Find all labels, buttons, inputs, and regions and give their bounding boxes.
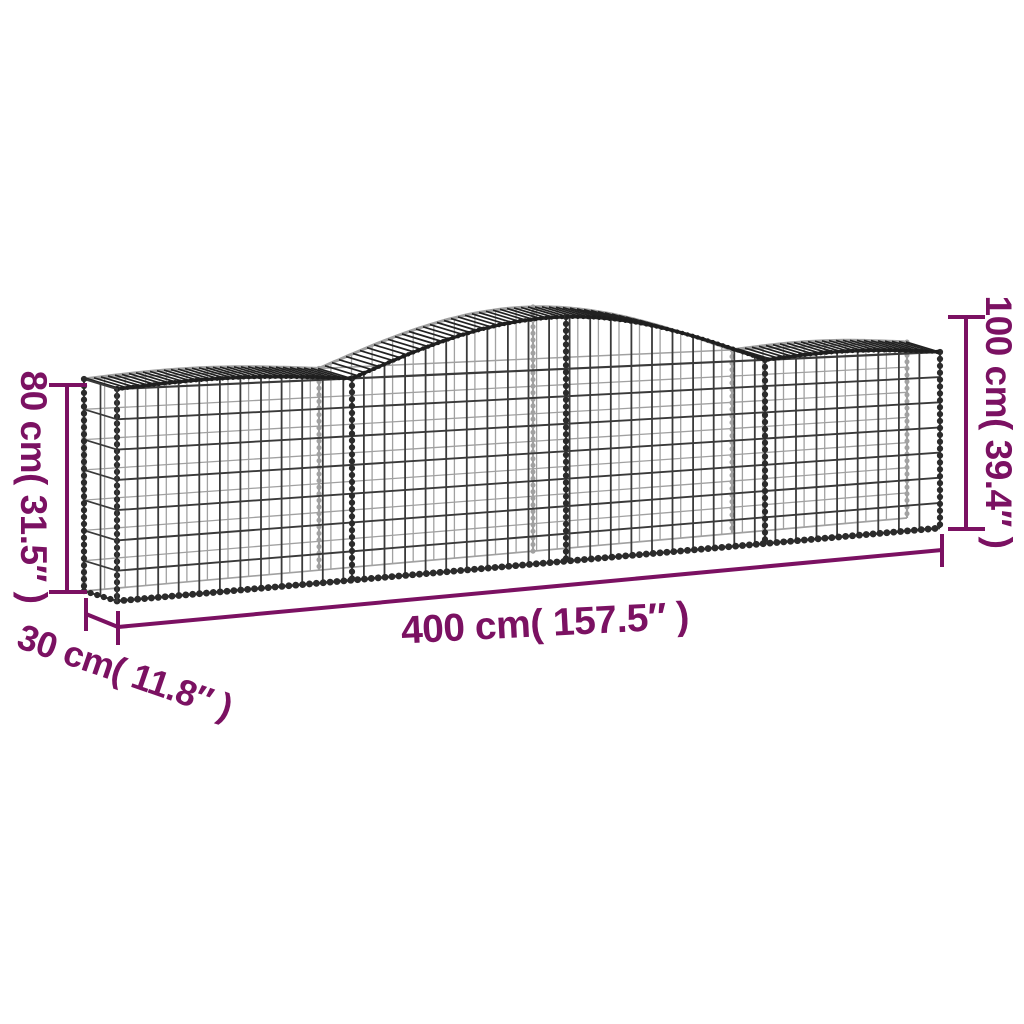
gabion-basket-illustration <box>0 0 1024 1024</box>
basket-back-mesh <box>84 307 907 591</box>
basket-left-end-face <box>84 379 117 601</box>
basket-front-mesh <box>117 317 940 601</box>
dimension-label-height-arch: 100 cm( 39.4″ ) <box>977 296 1019 549</box>
dimension-label-height-end: 80 cm( 31.5″ ) <box>12 371 54 604</box>
basket-top-rim <box>87 307 940 389</box>
product-dimension-diagram: 80 cm( 31.5″ ) 100 cm( 39.4″ ) 400 cm( 1… <box>0 0 1024 1024</box>
